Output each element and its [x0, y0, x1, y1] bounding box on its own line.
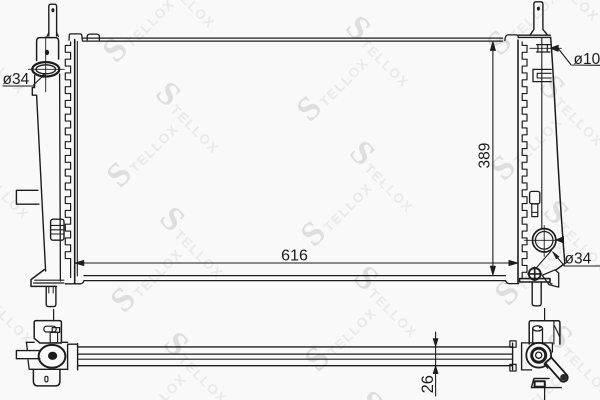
svg-text:ø34: ø34 — [565, 251, 592, 268]
svg-text:389: 389 — [476, 143, 493, 169]
svg-text:ø10: ø10 — [574, 51, 600, 68]
svg-text:616: 616 — [281, 247, 308, 264]
svg-text:26: 26 — [419, 375, 437, 393]
